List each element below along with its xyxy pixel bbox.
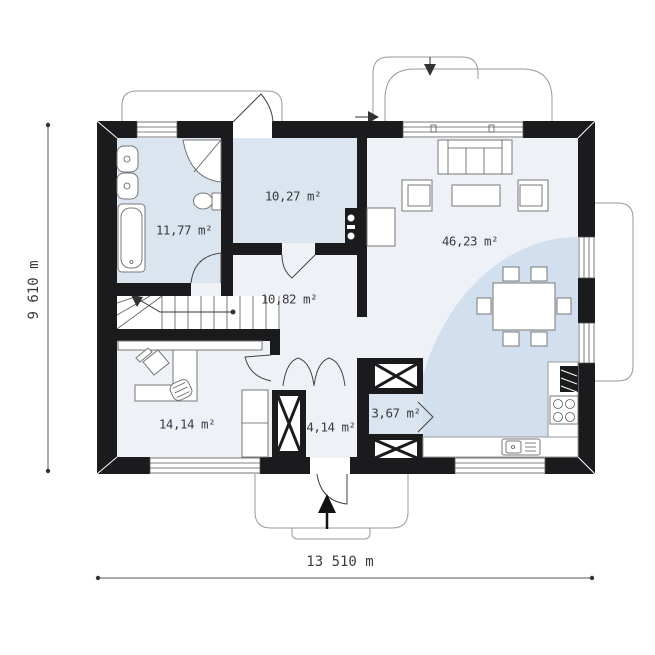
floor-plan: 11,77 m² 10,27 m² 10,82 m² 46,23 m² 14,1… <box>0 0 655 655</box>
door-bedroom-terrace <box>233 94 273 122</box>
washbasin-1 <box>117 146 138 172</box>
fireplace <box>345 208 395 246</box>
window-kitchen <box>455 458 545 473</box>
toilet <box>194 193 222 210</box>
window-living-right-upper <box>579 237 594 278</box>
hall-wardrobe <box>118 341 262 350</box>
coffee-table <box>452 185 500 206</box>
dimension-width-label: 13 510 m <box>306 554 373 570</box>
window-office <box>150 458 260 473</box>
terrace-outline-right <box>595 203 633 381</box>
room-label-hall: 10,82 m² <box>261 292 317 307</box>
washbasin-2 <box>117 173 138 199</box>
room-label-bathroom: 11,77 m² <box>156 223 212 238</box>
armchair-right <box>518 180 548 211</box>
kitchen-sink <box>502 439 540 455</box>
office-cabinet <box>242 390 268 457</box>
bathtub <box>118 204 145 272</box>
armchair-left <box>402 180 432 211</box>
shaft-entry <box>272 390 306 457</box>
stove <box>550 396 578 424</box>
staircase <box>117 295 280 329</box>
fridge <box>560 366 578 392</box>
entrance-arrow-icon <box>318 494 336 529</box>
window-bathroom <box>137 122 177 137</box>
terrace-outline-top-left <box>122 91 282 121</box>
entry-path-arrow-down-icon <box>424 57 436 76</box>
shaft-pantry-bottom <box>369 434 423 464</box>
room-label-living-room: 46,23 m² <box>442 234 498 249</box>
sofa <box>438 140 512 174</box>
terrace-outline-top-right <box>355 57 552 123</box>
dimension-line-width <box>96 576 594 580</box>
window-sliding-door-living <box>403 122 523 137</box>
room-label-entry: 4,14 m² <box>306 420 355 435</box>
dimension-height-label: 9 610 m <box>26 260 42 319</box>
room-label-pantry: 3,67 m² <box>371 406 420 421</box>
window-living-right-lower <box>579 323 594 363</box>
shaft-pantry-top <box>369 358 423 394</box>
door-entrance <box>317 474 347 504</box>
dimension-line-height <box>46 123 50 473</box>
room-label-bedroom: 10,27 m² <box>265 189 321 204</box>
room-label-office: 14,14 m² <box>159 417 215 432</box>
